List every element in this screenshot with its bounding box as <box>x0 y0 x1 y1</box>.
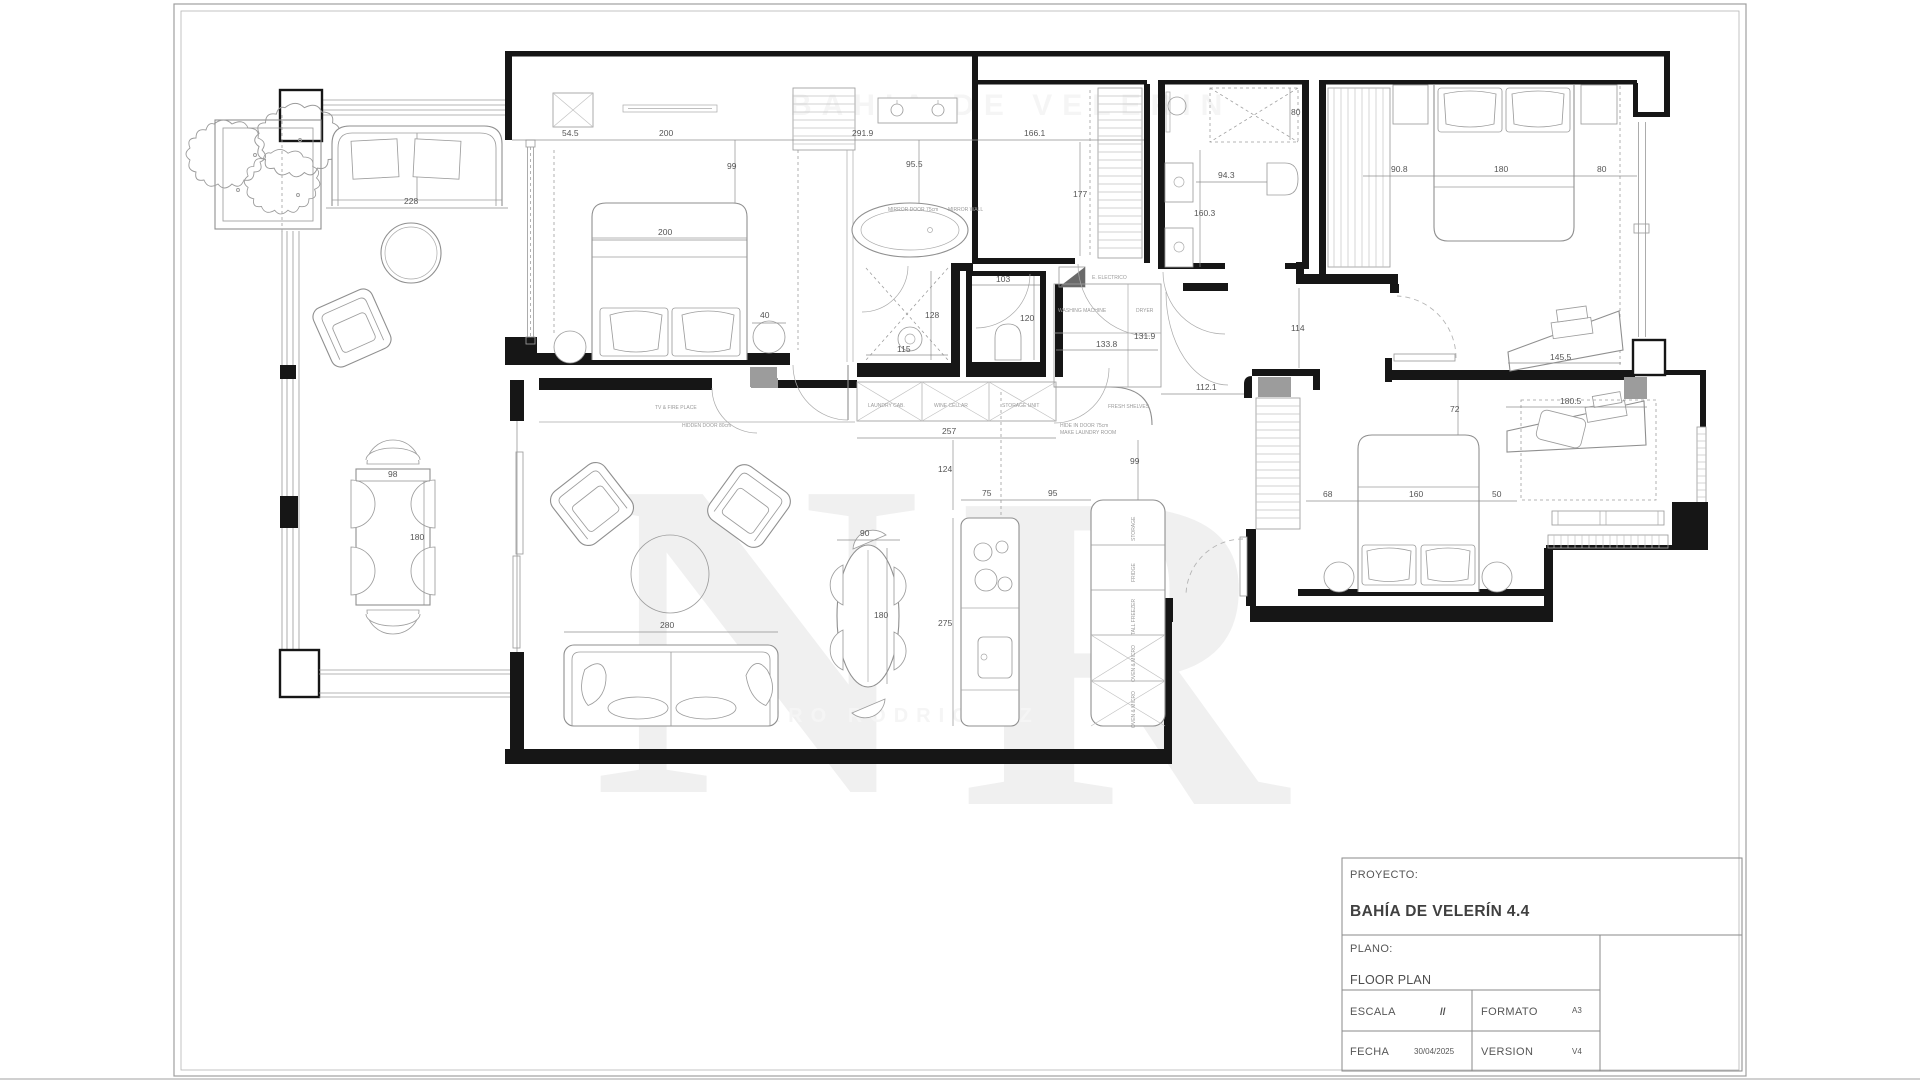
svg-text:OVEN & MICRO: OVEN & MICRO <box>1131 645 1137 682</box>
svg-text:54.5: 54.5 <box>562 128 579 138</box>
svg-text:95.5: 95.5 <box>906 159 923 169</box>
svg-text:TV & FIRE PLACE: TV & FIRE PLACE <box>655 405 697 411</box>
svg-text:145.5: 145.5 <box>1550 352 1572 362</box>
svg-text:166.1: 166.1 <box>1024 128 1046 138</box>
svg-text:HIDE IN DOOR 75cm: HIDE IN DOOR 75cm <box>1060 423 1108 429</box>
svg-text:160: 160 <box>1409 489 1423 499</box>
svg-text:95: 95 <box>1048 488 1058 498</box>
svg-text:99: 99 <box>1130 456 1140 466</box>
svg-text:131.9: 131.9 <box>1134 331 1156 341</box>
svg-text:STORAGE UNIT: STORAGE UNIT <box>1002 403 1039 409</box>
svg-text:128: 128 <box>925 310 939 320</box>
svg-text:99: 99 <box>727 161 737 171</box>
svg-text:PLANO:: PLANO: <box>1350 943 1393 955</box>
svg-text:ESCALA: ESCALA <box>1350 1006 1396 1018</box>
svg-text:FECHA: FECHA <box>1350 1046 1390 1058</box>
svg-text:STORAGE: STORAGE <box>1131 516 1137 541</box>
svg-text:PROYECTO:: PROYECTO: <box>1350 869 1418 881</box>
svg-text:98: 98 <box>388 469 398 479</box>
svg-text:80: 80 <box>1291 107 1301 117</box>
svg-text:94.3: 94.3 <box>1218 170 1235 180</box>
svg-text:124: 124 <box>938 464 952 474</box>
svg-text:90: 90 <box>860 528 870 538</box>
svg-text:LAUNDRY CAB.: LAUNDRY CAB. <box>868 403 905 409</box>
svg-text:40: 40 <box>760 310 770 320</box>
svg-text:120: 120 <box>1020 313 1034 323</box>
svg-text:V4: V4 <box>1572 1047 1582 1056</box>
svg-text:180: 180 <box>410 532 424 542</box>
svg-text:75: 75 <box>982 488 992 498</box>
svg-text:WINE CELLAR: WINE CELLAR <box>934 403 968 409</box>
svg-text:WASHING MACHINE: WASHING MACHINE <box>1058 308 1107 314</box>
svg-text:MIRROR DOOR 75cm: MIRROR DOOR 75cm <box>888 207 938 213</box>
svg-text:HIDDEN DOOR 80cm: HIDDEN DOOR 80cm <box>682 423 731 429</box>
svg-text:103: 103 <box>996 274 1010 284</box>
svg-text:291.9: 291.9 <box>852 128 874 138</box>
svg-text:112.1: 112.1 <box>1196 382 1217 392</box>
svg-text:VERSION: VERSION <box>1481 1046 1533 1058</box>
svg-text:A3: A3 <box>1572 1006 1582 1015</box>
svg-text:FRESH SHELVES: FRESH SHELVES <box>1108 404 1150 410</box>
svg-text:FLOOR PLAN: FLOOR PLAN <box>1350 973 1431 987</box>
svg-text:OVEN & MICRO: OVEN & MICRO <box>1131 691 1137 728</box>
svg-text:MIRROR WALL: MIRROR WALL <box>948 207 983 213</box>
svg-text:200: 200 <box>659 128 673 138</box>
svg-text:115: 115 <box>897 344 911 354</box>
svg-text:280: 280 <box>660 620 674 630</box>
svg-text:257: 257 <box>942 426 956 436</box>
svg-text:FRIDGE: FRIDGE <box>1131 562 1137 582</box>
svg-text:200: 200 <box>658 227 672 237</box>
svg-text:275: 275 <box>938 618 952 628</box>
svg-text:133.8: 133.8 <box>1096 339 1118 349</box>
svg-text:50: 50 <box>1492 489 1502 499</box>
svg-text:BAHÍA DE VELERÍN 4.4: BAHÍA DE VELERÍN 4.4 <box>1350 903 1530 920</box>
svg-text:177: 177 <box>1073 189 1087 199</box>
svg-text:30/04/2025: 30/04/2025 <box>1414 1047 1455 1056</box>
svg-text:90.8: 90.8 <box>1391 164 1408 174</box>
svg-text:114: 114 <box>1291 323 1305 333</box>
svg-text:FORMATO: FORMATO <box>1481 1006 1538 1018</box>
svg-text:180: 180 <box>1494 164 1508 174</box>
svg-text:180.5: 180.5 <box>1560 396 1582 406</box>
svg-text:DRYER: DRYER <box>1136 308 1154 314</box>
svg-text:160.3: 160.3 <box>1194 208 1216 218</box>
svg-text:E. ELECTRICO: E. ELECTRICO <box>1092 275 1127 281</box>
svg-text:68: 68 <box>1323 489 1333 499</box>
svg-text:228: 228 <box>404 196 418 206</box>
svg-text:80: 80 <box>1597 164 1607 174</box>
svg-text:180: 180 <box>874 610 888 620</box>
svg-text://: // <box>1440 1007 1446 1018</box>
svg-text:MAKE LAUNDRY ROOM: MAKE LAUNDRY ROOM <box>1060 430 1116 436</box>
svg-text:TALL FREEZER: TALL FREEZER <box>1131 598 1137 635</box>
svg-text:72: 72 <box>1450 404 1460 414</box>
